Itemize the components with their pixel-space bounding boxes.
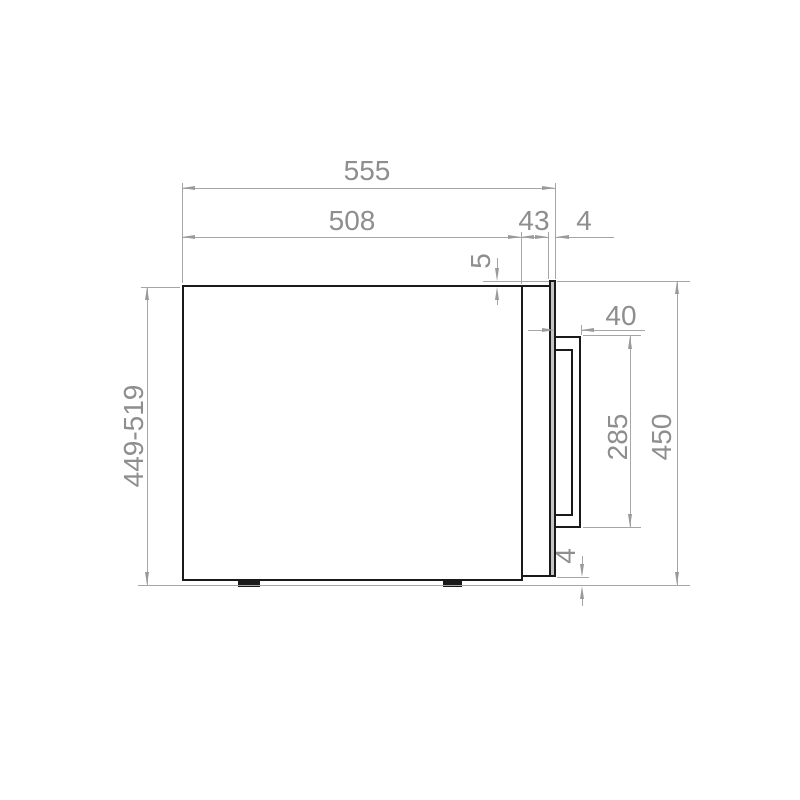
extension-line-door-top-left xyxy=(483,281,549,282)
dim-line-bottom-clearance-lower xyxy=(582,599,583,606)
dim-line-body-depth xyxy=(182,237,549,238)
dim-label-handle-height: 285 xyxy=(604,414,632,461)
dim-label-frame-depth: 43 xyxy=(518,207,549,235)
extension-line-handle-top xyxy=(583,335,641,336)
extension-line-door-back xyxy=(548,232,549,279)
extension-line-body-front xyxy=(521,232,522,284)
extension-line-door-bottom xyxy=(557,577,589,578)
arrow-up-icon xyxy=(580,586,584,599)
dim-label-bottom-clearance: 4 xyxy=(552,548,580,564)
dim-label-door-top-offset: 5 xyxy=(467,253,495,269)
extension-line-door-top-right xyxy=(557,281,690,282)
dim-label-body-depth: 508 xyxy=(329,207,376,235)
appliance-body-outline xyxy=(182,285,523,581)
door-handle-inner xyxy=(554,349,573,516)
arrow-down-icon xyxy=(145,572,149,585)
arrow-left-icon xyxy=(182,186,195,190)
dim-line-overall-width xyxy=(182,188,555,189)
dim-label-handle-depth: 40 xyxy=(605,302,636,330)
dim-label-overall-width: 555 xyxy=(344,157,391,185)
dim-line-overall-height xyxy=(677,281,678,586)
dim-label-height-range: 449-519 xyxy=(120,385,148,488)
arrow-right-icon xyxy=(542,328,555,332)
arrow-up-icon xyxy=(675,281,679,294)
extension-line-handle-bottom xyxy=(583,527,641,528)
dim-line-door-top-offset-lower xyxy=(497,300,498,305)
arrow-up-icon xyxy=(628,336,632,349)
arrow-up-icon xyxy=(145,287,149,300)
dim-label-door-thickness: 4 xyxy=(576,207,592,235)
arrow-up-icon xyxy=(495,287,499,300)
extension-line-door-front xyxy=(555,183,556,279)
arrow-right-icon xyxy=(542,186,555,190)
dim-label-overall-height: 450 xyxy=(648,414,676,461)
floor-line xyxy=(138,585,690,586)
arrow-down-icon xyxy=(495,268,499,281)
arrow-down-icon xyxy=(580,564,584,577)
technical-drawing: 555 508 43 4 5 40 285 450 449-519 4 xyxy=(0,0,800,800)
foot-right xyxy=(443,581,462,587)
arrow-left-icon xyxy=(556,235,569,239)
arrow-down-icon xyxy=(628,514,632,527)
arrow-left-icon xyxy=(581,328,594,332)
foot-left xyxy=(238,581,260,587)
dim-line-handle-depth-left xyxy=(528,330,543,331)
extension-line-body-left xyxy=(182,183,183,283)
arrow-left-icon xyxy=(182,235,195,239)
arrow-down-icon xyxy=(675,572,679,585)
frame-top-edge xyxy=(521,285,550,287)
